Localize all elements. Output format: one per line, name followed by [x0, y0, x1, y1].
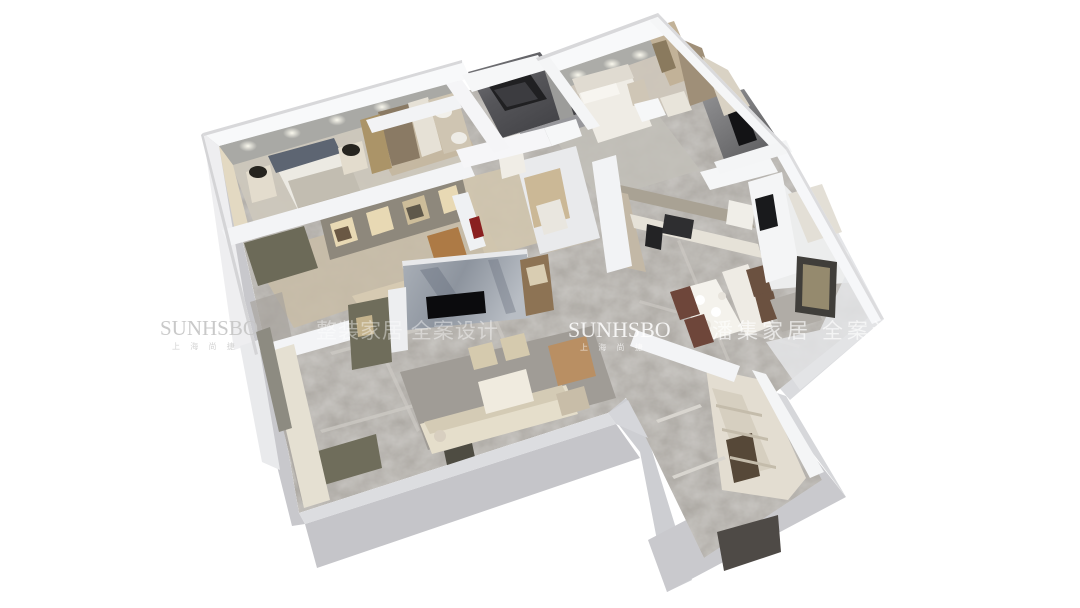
svg-text:上 海 尚 捷: 上 海 尚 捷	[172, 341, 239, 351]
svg-text:潘集家居 全案设计: 潘集家居 全案设计	[712, 320, 922, 343]
svg-text:SUNHSBO: SUNHSBO	[568, 317, 671, 342]
svg-text:SUNHSBO: SUNHSBO	[160, 316, 258, 340]
svg-text:整装家居 全案设计: 整装家居 全案设计	[316, 320, 499, 343]
svg-text:上 海 尚 捷: 上 海 尚 捷	[580, 342, 647, 352]
